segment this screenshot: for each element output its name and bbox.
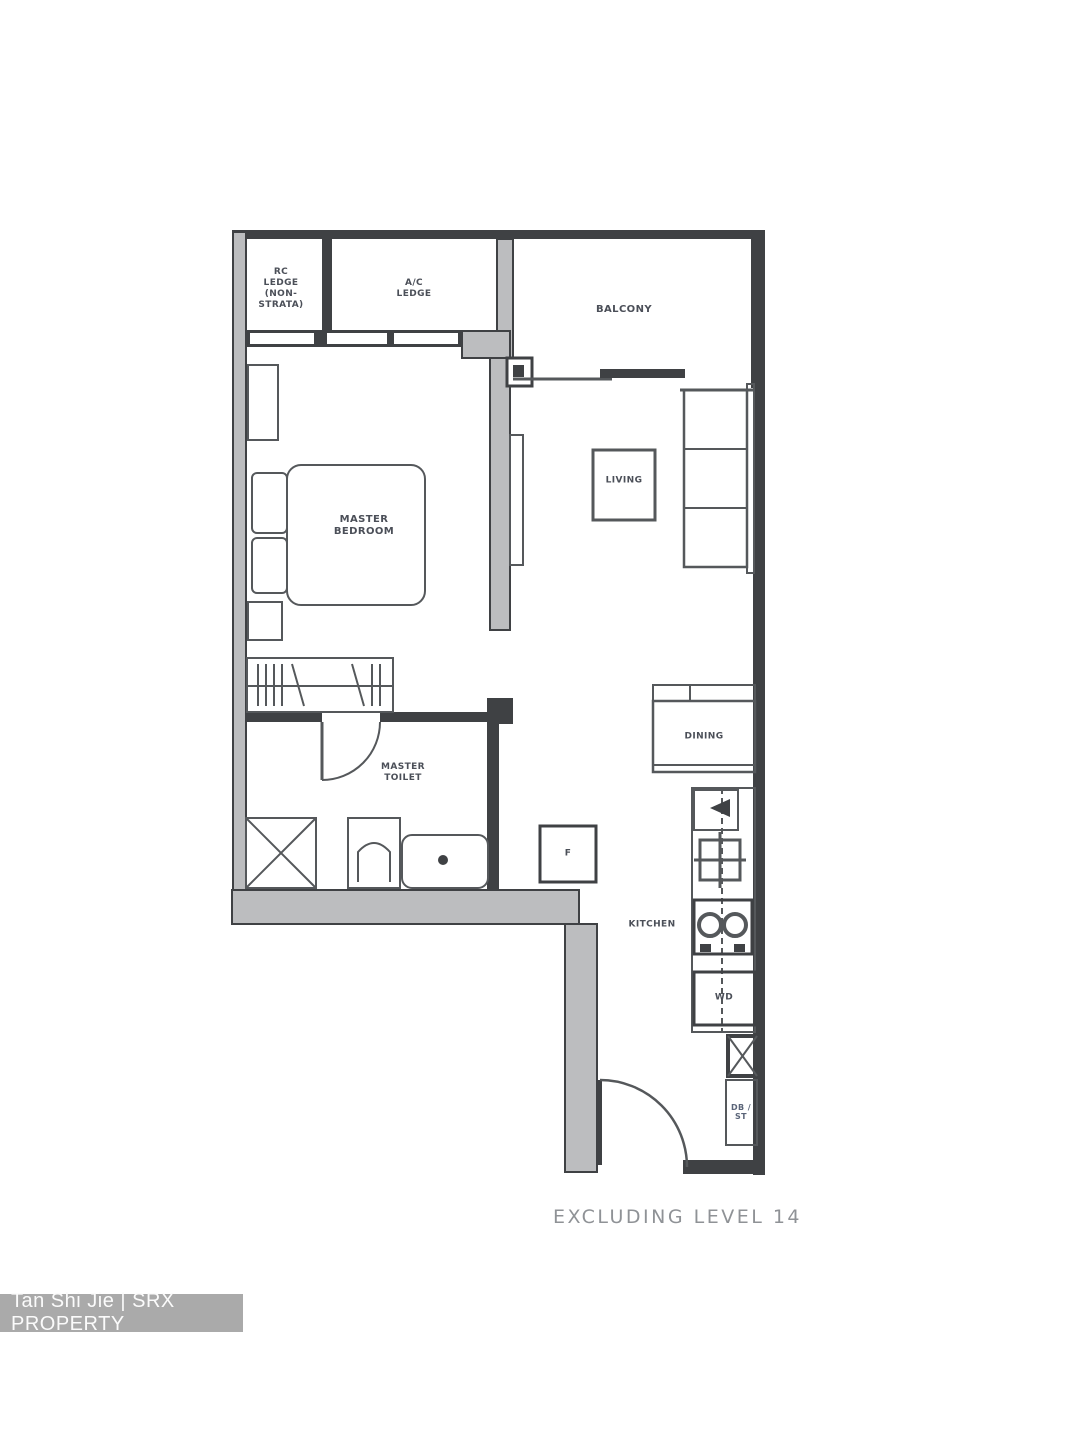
floorplan-page: RC LEDGE (NON- STRATA) A/C LEDGE BALCONY… (0, 0, 1080, 1440)
sliding-door-icon (513, 369, 753, 390)
shaft-box-icon (728, 1036, 757, 1076)
washer-dryer-label: WD (715, 993, 733, 1004)
wall-bedroom-divider (490, 358, 510, 630)
kitchen-sink (694, 832, 746, 888)
room-label-master-bedroom: MASTER BEDROOM (334, 514, 394, 538)
wardrobe (247, 658, 393, 712)
wall-left (233, 232, 246, 891)
caption-excluding-level: EXCLUDING LEVEL 14 (540, 1206, 815, 1228)
dining-counter (653, 685, 755, 701)
sofa (684, 384, 754, 573)
wall-top (232, 230, 765, 239)
wall-ledge-divider (322, 239, 332, 332)
toilet-wc (348, 818, 400, 888)
room-label-kitchen: KITCHEN (628, 920, 675, 931)
pillow (252, 538, 287, 593)
room-label-dining: DINING (684, 732, 723, 743)
ledge-vent-slits (250, 333, 458, 344)
room-label-balcony: BALCONY (596, 304, 652, 316)
watermark-text: Tan Shi Jie | SRX PROPERTY (0, 1290, 243, 1336)
wall-lower-vertical (565, 924, 597, 1172)
db-st-label: DB / ST (731, 1103, 751, 1121)
kitchen-faucet-icon (694, 790, 738, 830)
dresser (248, 365, 278, 440)
fridge-label: F (565, 849, 572, 860)
gray-walls-group (232, 232, 597, 1172)
wall-bottom-right (683, 1160, 765, 1174)
bedside-table (248, 602, 282, 640)
room-label-rc-ledge: RC LEDGE (NON- STRATA) (258, 267, 303, 311)
wall-lower-horizontal (232, 890, 579, 924)
wall-corner-block (462, 331, 510, 358)
wall-toilet-top-left (246, 712, 322, 722)
room-label-living: LIVING (606, 476, 643, 487)
vanity-basin (402, 835, 488, 888)
tv-console (510, 435, 523, 565)
room-label-master-toilet: MASTER TOILET (381, 762, 425, 784)
room-label-ac-ledge: A/C LEDGE (397, 278, 432, 300)
wall-toilet-top-right (380, 712, 490, 722)
column-icon (507, 358, 532, 386)
watermark-badge: Tan Shi Jie | SRX PROPERTY (0, 1294, 243, 1332)
toilet-door-arc (322, 722, 380, 780)
entry-door-arc (600, 1080, 687, 1167)
wall-stub-box (487, 698, 513, 724)
shower (246, 818, 316, 888)
wall-right-balcony (751, 230, 765, 388)
pillow (252, 473, 287, 533)
